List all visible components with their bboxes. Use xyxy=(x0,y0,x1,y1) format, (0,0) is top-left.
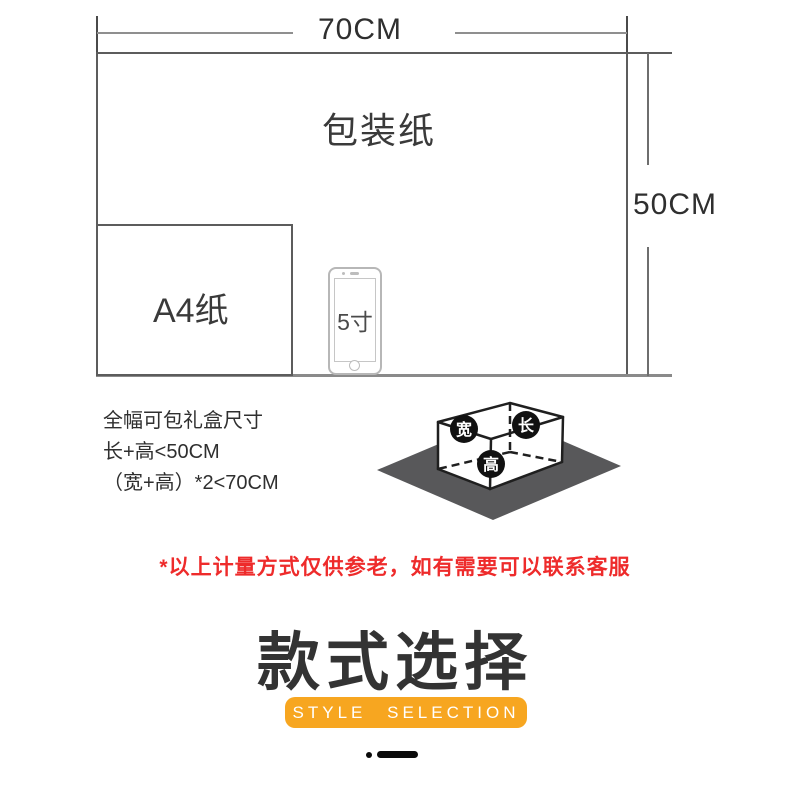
spec-line-title: 全幅可包礼盒尺寸 xyxy=(103,406,279,437)
width-badge-label: 宽 xyxy=(456,420,472,439)
section-subtitle: STYLE SELECTION xyxy=(293,703,520,723)
a4-paper-label: A4纸 xyxy=(153,283,229,332)
height-badge-label: 高 xyxy=(483,455,499,474)
phone-illustration: 5寸 xyxy=(328,267,382,375)
length-badge-label: 长 xyxy=(518,416,535,435)
height-dimension-label: 50CM xyxy=(633,188,717,222)
dim-line-width-left xyxy=(97,32,293,34)
top-edge-extension xyxy=(628,52,672,54)
phone-home-button-icon xyxy=(349,360,360,371)
disclaimer-note: *以上计量方式仅供参老，如有需要可以联系客服 xyxy=(0,551,790,581)
dim-line-width-right xyxy=(455,32,627,34)
footer-dot-icon xyxy=(366,752,372,758)
spec-line-length-height: 长+高<50CM xyxy=(103,437,279,468)
gift-box-size-specs: 全幅可包礼盒尺寸 长+高<50CM （宽+高）*2<70CM xyxy=(103,406,279,499)
dim-line-height-top xyxy=(647,53,649,165)
dim-extension-right xyxy=(626,16,628,54)
section-title: 款式选择 xyxy=(0,612,790,703)
dim-extension-left xyxy=(96,16,98,54)
phone-screen: 5寸 xyxy=(334,278,376,362)
gift-box-diagram: 宽 长 高 xyxy=(370,395,626,527)
section-subtitle-badge: STYLE SELECTION xyxy=(285,697,527,728)
product-size-infographic: 70CM 包装纸 50CM A4纸 5寸 全幅可包礼盒尺寸 长+高<50CM （… xyxy=(0,0,790,796)
phone-speaker-icon xyxy=(350,272,359,275)
footer-bar-icon xyxy=(377,751,418,758)
wrapping-paper-label: 包装纸 xyxy=(322,102,436,154)
spec-line-width-height: （宽+高）*2<70CM xyxy=(103,468,279,499)
phone-size-label: 5寸 xyxy=(337,303,373,337)
width-dimension-label: 70CM xyxy=(318,13,402,47)
dim-line-height-bottom xyxy=(647,247,649,376)
phone-camera-icon xyxy=(342,272,345,275)
